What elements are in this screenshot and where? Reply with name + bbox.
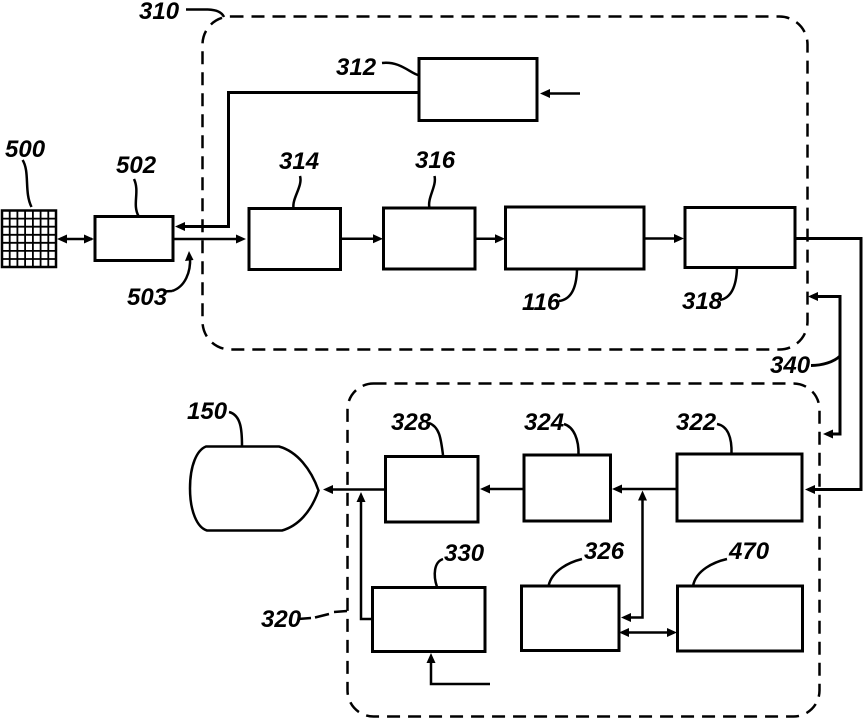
svg-text:310: 310: [139, 0, 180, 25]
svg-text:314: 314: [279, 148, 319, 175]
svg-text:503: 503: [127, 284, 168, 311]
svg-text:318: 318: [682, 288, 723, 315]
svg-text:316: 316: [415, 147, 456, 174]
svg-text:324: 324: [524, 409, 564, 436]
svg-text:502: 502: [116, 152, 157, 179]
svg-text:326: 326: [584, 538, 625, 565]
svg-text:330: 330: [444, 540, 485, 567]
svg-text:340: 340: [770, 352, 811, 379]
svg-text:500: 500: [5, 136, 46, 163]
svg-text:322: 322: [676, 409, 717, 436]
svg-text:116: 116: [522, 289, 561, 316]
svg-text:320: 320: [261, 606, 302, 633]
svg-text:312: 312: [336, 54, 377, 81]
svg-text:470: 470: [728, 538, 770, 565]
svg-text:328: 328: [391, 409, 432, 436]
svg-text:150: 150: [187, 398, 228, 425]
